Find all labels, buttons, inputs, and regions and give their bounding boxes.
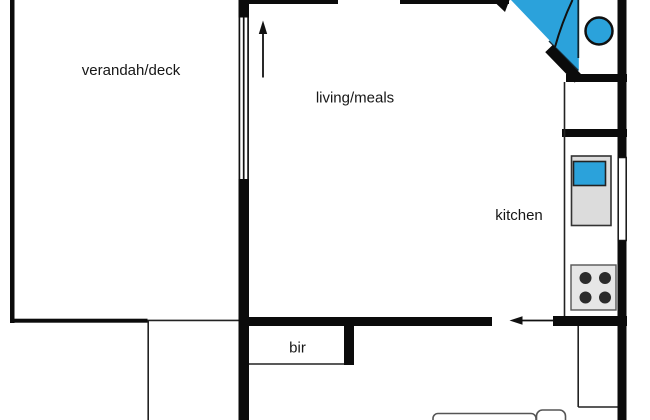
svg-text:verandah/deck: verandah/deck xyxy=(82,62,181,79)
svg-text:living/meals: living/meals xyxy=(316,90,394,107)
svg-text:bir: bir xyxy=(289,340,306,357)
svg-text:kitchen: kitchen xyxy=(495,207,543,224)
